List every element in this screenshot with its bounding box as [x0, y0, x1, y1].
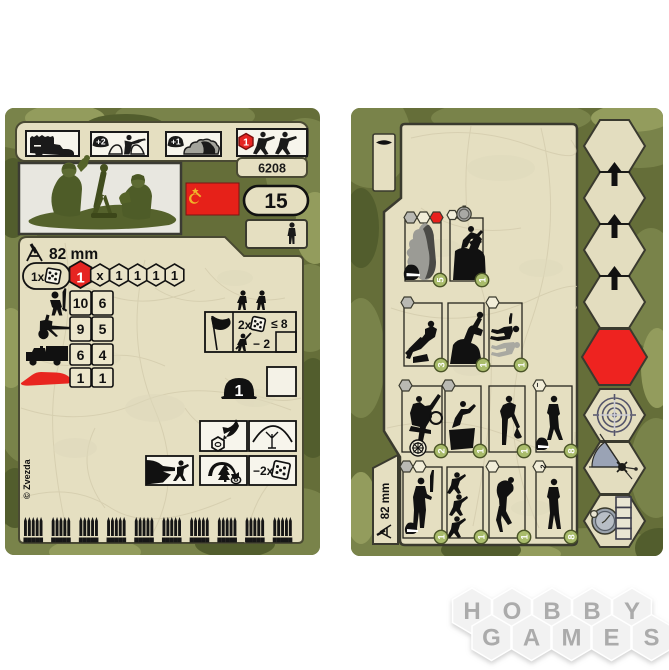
svg-text:1: 1	[243, 137, 249, 149]
svg-text:− 2: − 2	[253, 337, 270, 351]
svg-text:9: 9	[77, 321, 85, 337]
svg-text:H: H	[463, 598, 480, 625]
svg-text:6208: 6208	[258, 162, 286, 176]
svg-text:−2x: −2x	[253, 464, 274, 478]
svg-text:2: 2	[539, 464, 548, 468]
svg-text:x: x	[96, 268, 104, 283]
svg-text:B: B	[543, 598, 560, 625]
svg-text:1: 1	[99, 370, 107, 386]
svg-text:1: 1	[479, 362, 490, 368]
svg-text:10: 10	[73, 295, 89, 311]
svg-text:≤ 8: ≤ 8	[271, 317, 288, 331]
svg-text:6: 6	[99, 295, 107, 311]
svg-text:+2: +2	[96, 137, 106, 147]
svg-text:1: 1	[437, 534, 448, 540]
svg-text:15: 15	[264, 190, 288, 213]
svg-text:1: 1	[476, 448, 487, 454]
svg-text:2x: 2x	[238, 318, 252, 332]
svg-text:A: A	[523, 625, 540, 652]
svg-text:1: 1	[235, 383, 244, 400]
svg-text:1: 1	[115, 268, 122, 283]
svg-text:1: 1	[76, 270, 84, 287]
svg-text:O: O	[503, 598, 522, 625]
svg-text:1: 1	[477, 534, 488, 540]
svg-text:1: 1	[517, 362, 528, 368]
svg-text:8: 8	[567, 534, 578, 539]
svg-text:1: 1	[520, 534, 531, 540]
svg-text:1: 1	[478, 277, 489, 283]
svg-text:© Zvezda: © Zvezda	[22, 458, 32, 499]
svg-text:4: 4	[99, 347, 107, 363]
svg-text:82 mm: 82 mm	[49, 246, 98, 263]
svg-text:1: 1	[520, 448, 531, 454]
svg-text:5: 5	[99, 321, 107, 337]
svg-text:6: 6	[77, 347, 85, 363]
svg-text:82 mm: 82 mm	[380, 483, 392, 519]
svg-text:M: M	[562, 625, 582, 652]
svg-text:1x: 1x	[31, 270, 45, 284]
svg-text:5: 5	[436, 277, 447, 283]
svg-text:Y: Y	[624, 598, 640, 625]
svg-text:B: B	[583, 598, 600, 625]
svg-text:1: 1	[171, 268, 178, 283]
svg-text:E: E	[603, 625, 619, 652]
svg-text:8: 8	[567, 448, 578, 453]
svg-text:1: 1	[134, 268, 141, 283]
svg-text:1: 1	[77, 370, 85, 386]
svg-text:+1: +1	[171, 137, 181, 147]
svg-text:1: 1	[152, 268, 159, 283]
svg-text:S: S	[643, 625, 659, 652]
svg-text:3: 3	[437, 362, 448, 367]
svg-text:G: G	[482, 625, 501, 652]
svg-text:−: −	[533, 382, 542, 387]
svg-text:2: 2	[437, 448, 448, 453]
